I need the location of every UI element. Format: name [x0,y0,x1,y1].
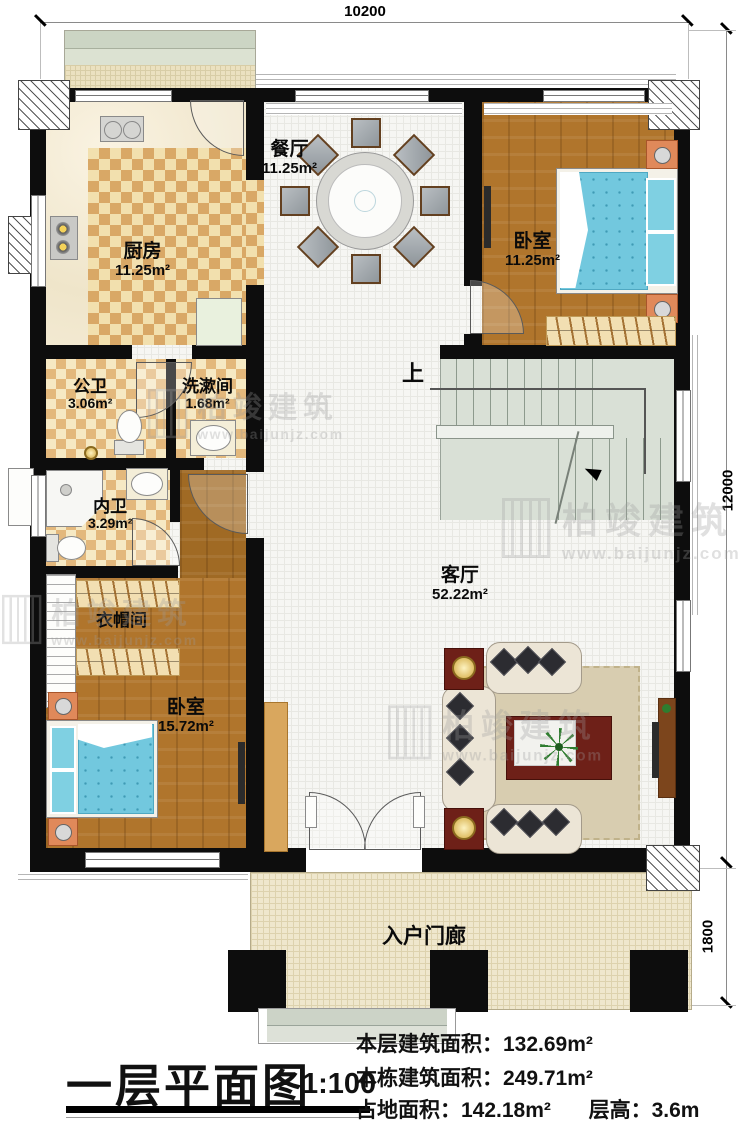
toilet-bowl [57,536,86,560]
stat-land-area-and-height: 占地面积：142.18m² 层高：3.6m [356,1094,699,1124]
dimension-extension [688,30,736,31]
rear-terrace [64,30,256,92]
window-sill [692,335,702,615]
bed-pillow [646,232,676,286]
nightstand [48,818,78,846]
tv-panel [652,722,659,778]
corner-pier [18,80,70,130]
wardrobe [546,316,676,346]
bed-pillow [50,726,76,770]
window [676,390,691,482]
dimension-line [726,868,727,1006]
window-sill [18,874,248,884]
window [31,195,46,287]
dimension-porch-depth: 1800 [700,907,717,967]
cloak-hanger-rod [76,648,180,676]
washroom-basin [196,425,231,451]
floor-drain [84,446,98,460]
room-label-private-bath: 内卫 3.29m² [88,498,132,531]
plant-icon [540,728,578,766]
wall [30,345,132,359]
dimension-top-width: 10200 [310,3,420,20]
terrace-step [65,31,255,49]
room-label-bedroom-main: 卧室 15.72m² [158,698,214,735]
stair-direction-line [644,388,646,474]
corner-pier [646,845,700,891]
porch-column [228,950,286,1012]
nightstand [646,140,678,169]
window [31,475,46,537]
window-sill [484,103,672,115]
window-sill [256,74,676,86]
dining-chair [420,186,450,216]
room-label-living: 客厅 52.22m² [432,566,488,603]
stairs-up-label: 上 [402,362,424,386]
room-label-bedroom-top: 卧室 11.25m² [505,232,560,269]
dining-table-center [354,190,376,212]
dimension-line [40,22,688,23]
window [543,90,645,102]
tv-panel [484,186,491,248]
window-sill [266,103,462,115]
stair-rail [436,425,614,439]
door-jamb [413,796,425,828]
stat-building-area: 本栋建筑面积：249.71m² [356,1062,593,1092]
wall [464,88,482,286]
cloak-shelf-unit [46,574,76,708]
room-label-dining: 餐厅 11.25m² [262,140,317,177]
room-label-kitchen: 厨房 11.25m² [115,242,170,279]
title-underline-thin [66,1117,370,1118]
room-label-washroom: 洗漱间 1.68m² [182,378,233,411]
window [295,90,429,102]
room-label-public-bath: 公卫 3.06m² [68,378,112,411]
tv-cabinet [658,698,676,798]
stair-treads-lower [558,438,674,520]
dimension-right-height: 12000 [720,461,737,521]
dining-chair [351,254,381,284]
plant-icon [662,704,671,713]
wall [246,285,264,472]
dimension-extension [688,23,689,79]
window [676,600,691,672]
stat-floor-area: 本层建筑面积：132.69m² [356,1028,593,1058]
wall [192,345,264,359]
title-underline [66,1106,370,1113]
kitchen-sink [100,116,144,142]
burner [56,240,70,254]
room-label-cloakroom: 衣帽间 [96,612,147,630]
terrace-step [65,49,255,66]
stair-treads-upper [456,359,608,425]
shoe-cabinet [264,702,288,852]
dining-chair [351,118,381,148]
room-label-porch: 入户门廊 [382,926,466,949]
kitchen-doorway-floor [246,180,264,285]
sink-bowl [104,121,122,139]
dining-chair [280,186,310,216]
bed-pillow [50,770,76,814]
wall [170,470,180,522]
dimension-extension [690,1005,736,1006]
window [75,90,172,102]
window [85,852,220,868]
cloak-hanger-rod [76,580,180,608]
table-lamp [452,656,476,680]
toilet-bowl [117,410,142,443]
stove [50,216,78,260]
shower-head [60,484,72,496]
table-lamp [452,816,476,840]
fridge [196,298,242,346]
dimension-line [726,30,727,868]
dimension-extension [40,23,41,79]
bed-pillow [646,178,676,232]
step [267,1009,447,1026]
porch-column [630,950,688,1012]
nightstand [48,692,78,720]
floor-plan-page: { "plan": { "rooms": { "dining": {"name"… [0,0,750,1129]
bath-basin [131,472,163,496]
porch-column [430,950,488,1012]
wall [30,458,204,470]
sink-bowl [123,121,141,139]
wall [440,345,690,359]
stair-direction-line [430,388,646,390]
tv-panel [238,742,245,804]
wall [246,538,264,848]
burner [56,222,70,236]
door-jamb [305,796,317,828]
